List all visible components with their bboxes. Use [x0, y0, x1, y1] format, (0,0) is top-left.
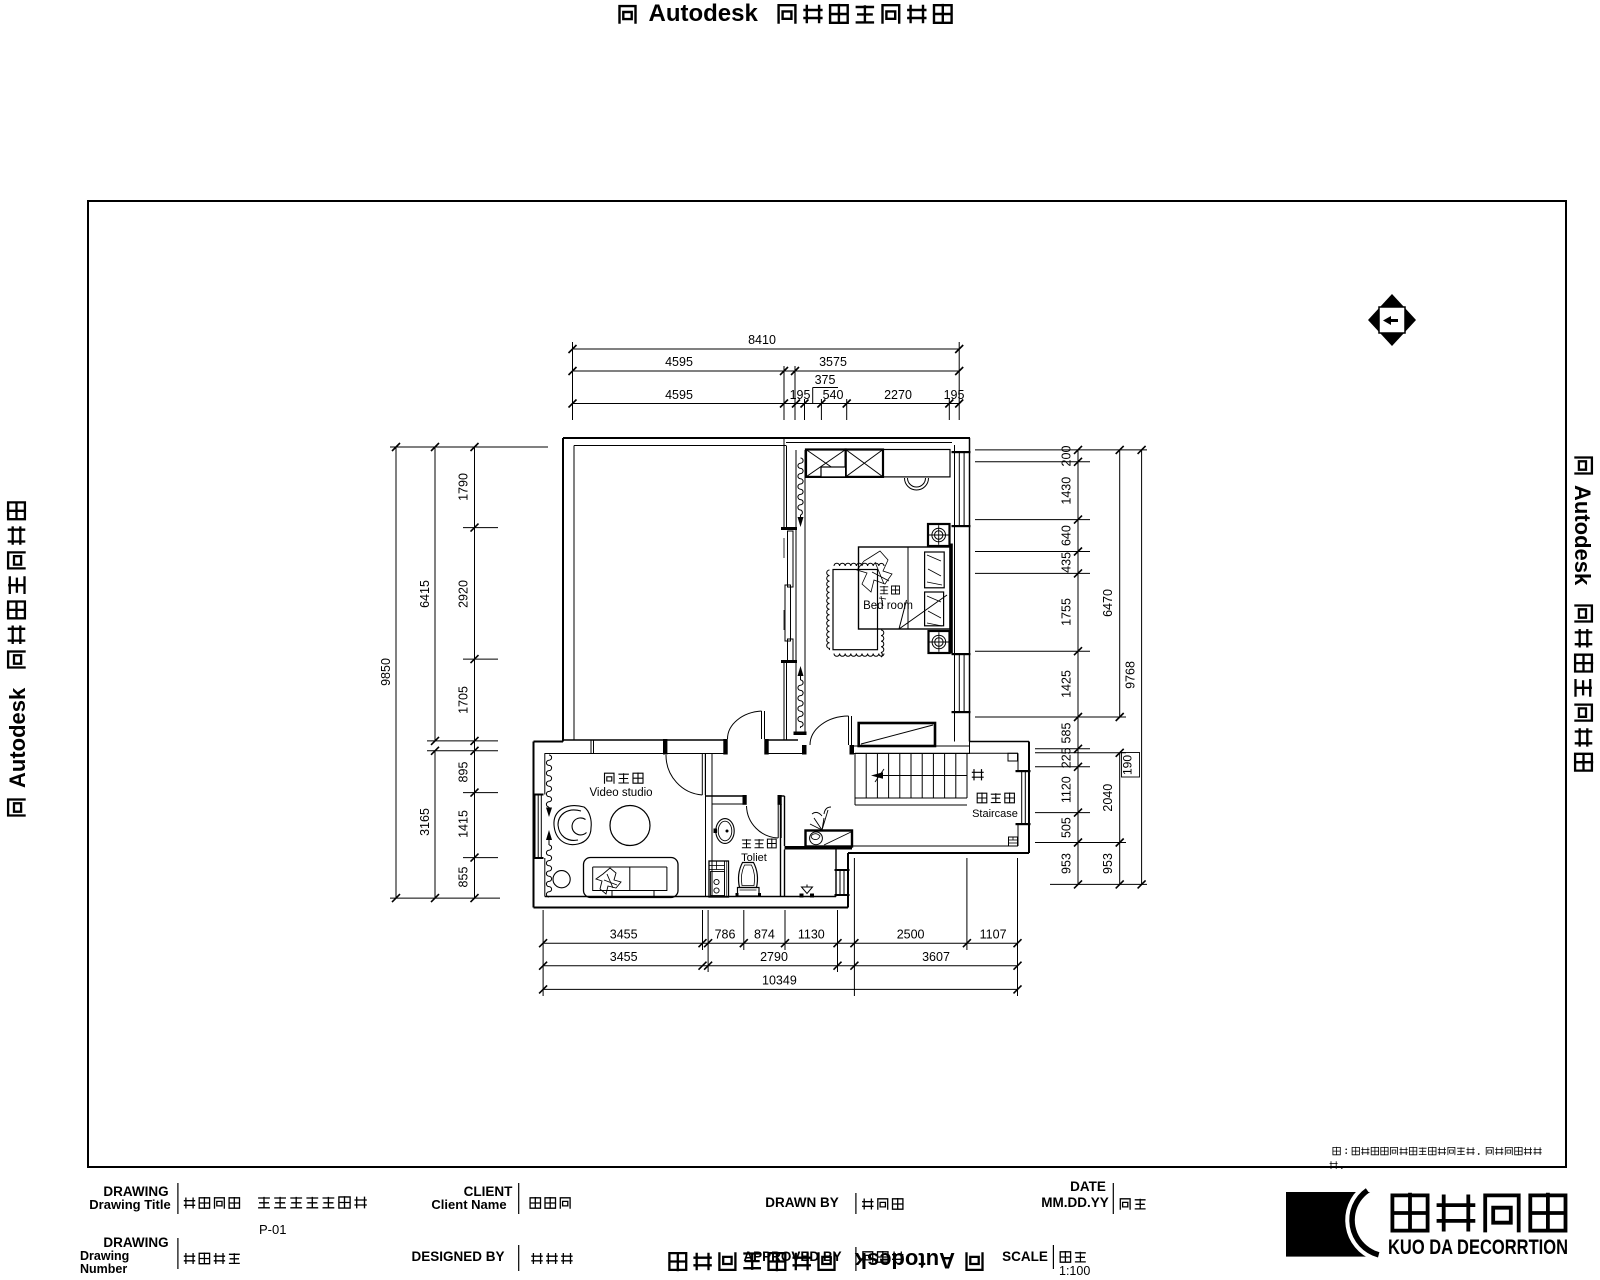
- svg-text:1107: 1107: [980, 928, 1007, 942]
- svg-text:9850: 9850: [379, 658, 393, 686]
- svg-text:4595: 4595: [665, 355, 693, 369]
- svg-text:1415: 1415: [457, 810, 471, 838]
- svg-text:200: 200: [1060, 446, 1074, 467]
- svg-text:2040: 2040: [1101, 784, 1115, 812]
- svg-text:540: 540: [823, 388, 844, 402]
- svg-text:Autodesk: Autodesk: [5, 687, 30, 788]
- svg-text:640: 640: [1060, 525, 1074, 546]
- svg-text:3575: 3575: [819, 355, 847, 369]
- svg-text:786: 786: [715, 928, 736, 942]
- svg-text:1:100: 1:100: [1059, 1264, 1090, 1278]
- svg-text:DATE: DATE: [1070, 1179, 1106, 1194]
- svg-text:Drawing: Drawing: [80, 1249, 129, 1263]
- svg-text:DRAWING: DRAWING: [103, 1235, 168, 1250]
- svg-text:Video studio: Video studio: [589, 787, 652, 799]
- svg-text:Autodesk: Autodesk: [649, 0, 759, 27]
- svg-text:10349: 10349: [762, 974, 797, 988]
- svg-text:6470: 6470: [1101, 589, 1115, 617]
- svg-text:9768: 9768: [1124, 661, 1138, 689]
- svg-text:585: 585: [1060, 723, 1074, 744]
- svg-text:Client Name: Client Name: [431, 1197, 506, 1212]
- svg-text:895: 895: [457, 762, 471, 783]
- svg-text:435: 435: [1060, 552, 1074, 573]
- svg-text:953: 953: [1101, 853, 1115, 874]
- svg-text:MM.DD.YY: MM.DD.YY: [1041, 1195, 1109, 1210]
- svg-text:225: 225: [1060, 747, 1074, 768]
- svg-text:Autodesk: Autodesk: [1570, 485, 1595, 586]
- svg-text:195: 195: [790, 388, 811, 402]
- svg-text:1130: 1130: [798, 928, 825, 942]
- svg-text:1430: 1430: [1060, 477, 1074, 505]
- svg-text:3455: 3455: [610, 950, 638, 964]
- svg-text:KUO DA DECORRTION: KUO DA DECORRTION: [1388, 1236, 1568, 1259]
- svg-text:P-01: P-01: [259, 1222, 286, 1237]
- svg-text:3165: 3165: [418, 808, 432, 836]
- svg-text:Number: Number: [80, 1262, 127, 1276]
- svg-text:3607: 3607: [922, 950, 950, 964]
- svg-text:Staircase: Staircase: [972, 808, 1018, 820]
- svg-text:855: 855: [457, 867, 471, 888]
- svg-text:DESIGNED BY: DESIGNED BY: [411, 1249, 504, 1264]
- svg-text:2920: 2920: [457, 580, 471, 608]
- svg-text:2500: 2500: [897, 928, 925, 942]
- svg-text:1425: 1425: [1060, 670, 1074, 698]
- svg-text:505: 505: [1060, 817, 1074, 838]
- svg-text:874: 874: [754, 928, 775, 942]
- svg-text:190: 190: [1121, 755, 1135, 775]
- svg-text:2270: 2270: [884, 388, 912, 402]
- svg-text:8410: 8410: [748, 333, 776, 347]
- svg-text:4595: 4595: [665, 388, 693, 402]
- svg-text:1755: 1755: [1060, 598, 1074, 626]
- svg-text:Bed room: Bed room: [863, 600, 913, 612]
- svg-text:1120: 1120: [1060, 776, 1074, 803]
- svg-text:195: 195: [944, 388, 965, 402]
- svg-text:Drawing Title: Drawing Title: [89, 1197, 170, 1212]
- svg-text:DRAWN BY: DRAWN BY: [765, 1195, 839, 1210]
- svg-text:953: 953: [1060, 853, 1074, 874]
- svg-text:3455: 3455: [610, 928, 638, 942]
- svg-text:APPROVED BY: APPROVED BY: [743, 1249, 841, 1264]
- svg-text:375: 375: [815, 373, 836, 387]
- svg-text:1705: 1705: [457, 686, 471, 714]
- svg-text:2790: 2790: [760, 950, 788, 964]
- svg-text:SCALE: SCALE: [1002, 1249, 1048, 1264]
- svg-text:1790: 1790: [457, 473, 471, 501]
- svg-text:6415: 6415: [418, 580, 432, 608]
